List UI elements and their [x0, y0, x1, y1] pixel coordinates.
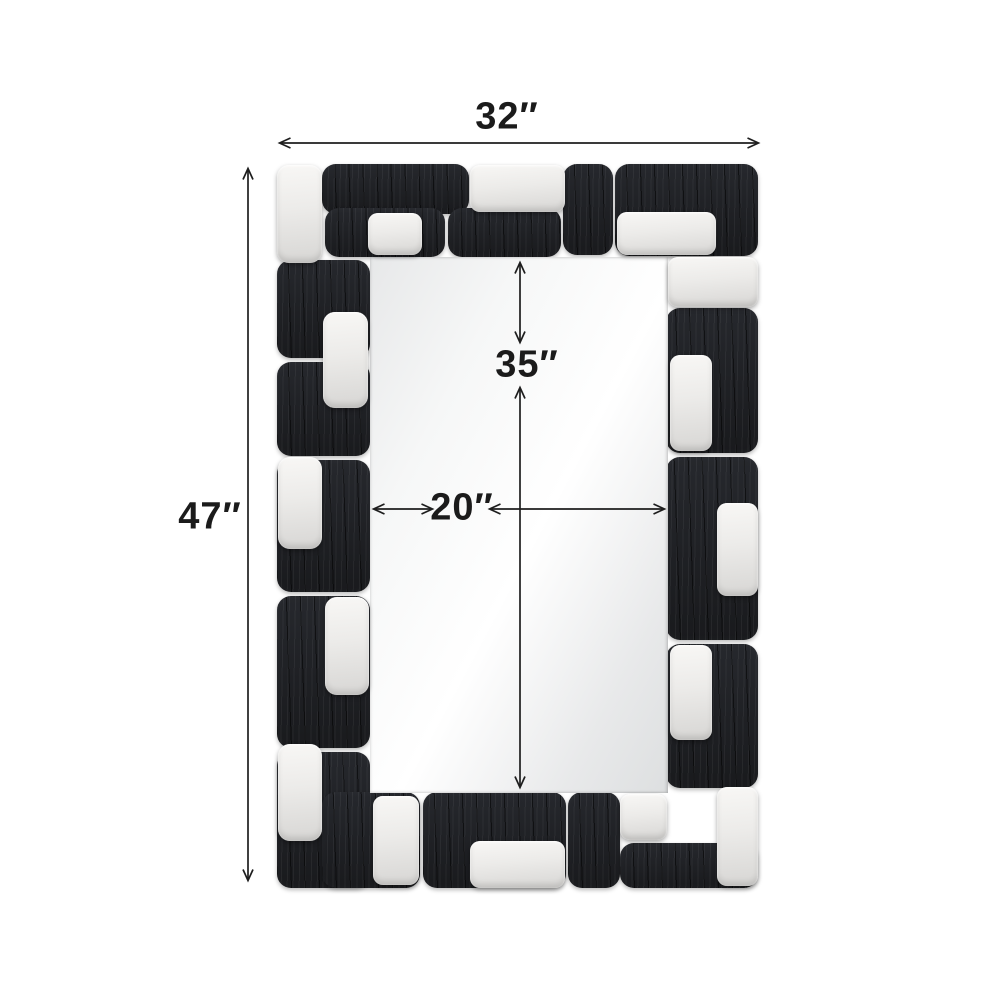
- frame-black-block: [322, 164, 469, 214]
- frame-silver-block: [368, 213, 422, 255]
- frame-silver-block: [278, 457, 322, 549]
- frame-silver-block: [470, 841, 565, 888]
- frame-silver-block: [670, 645, 712, 740]
- frame-silver-block: [470, 165, 565, 212]
- frame-silver-block: [617, 212, 716, 255]
- frame-silver-block: [323, 312, 368, 408]
- overall-width-label: 32″: [475, 96, 538, 139]
- frame-silver-block: [620, 794, 667, 840]
- frame-silver-block: [717, 787, 758, 886]
- frame-black-block: [568, 792, 620, 888]
- frame-silver-block: [277, 165, 322, 263]
- mirror-width-label: 20″: [430, 487, 493, 530]
- frame-silver-block: [373, 796, 419, 885]
- frame-black-block: [448, 208, 561, 257]
- frame-silver-block: [717, 503, 758, 596]
- frame-black-block: [563, 164, 613, 255]
- mirror-glass: [370, 257, 668, 793]
- frame-silver-block: [325, 597, 369, 695]
- mirror-height-label: 35″: [495, 344, 558, 387]
- frame-silver-block: [278, 744, 322, 841]
- frame-silver-block: [670, 355, 712, 451]
- frame-silver-block: [668, 257, 758, 307]
- overall-height-label: 47″: [178, 496, 241, 539]
- product-diagram-canvas: 32″ 47″ 35″ 20″: [0, 0, 1000, 1000]
